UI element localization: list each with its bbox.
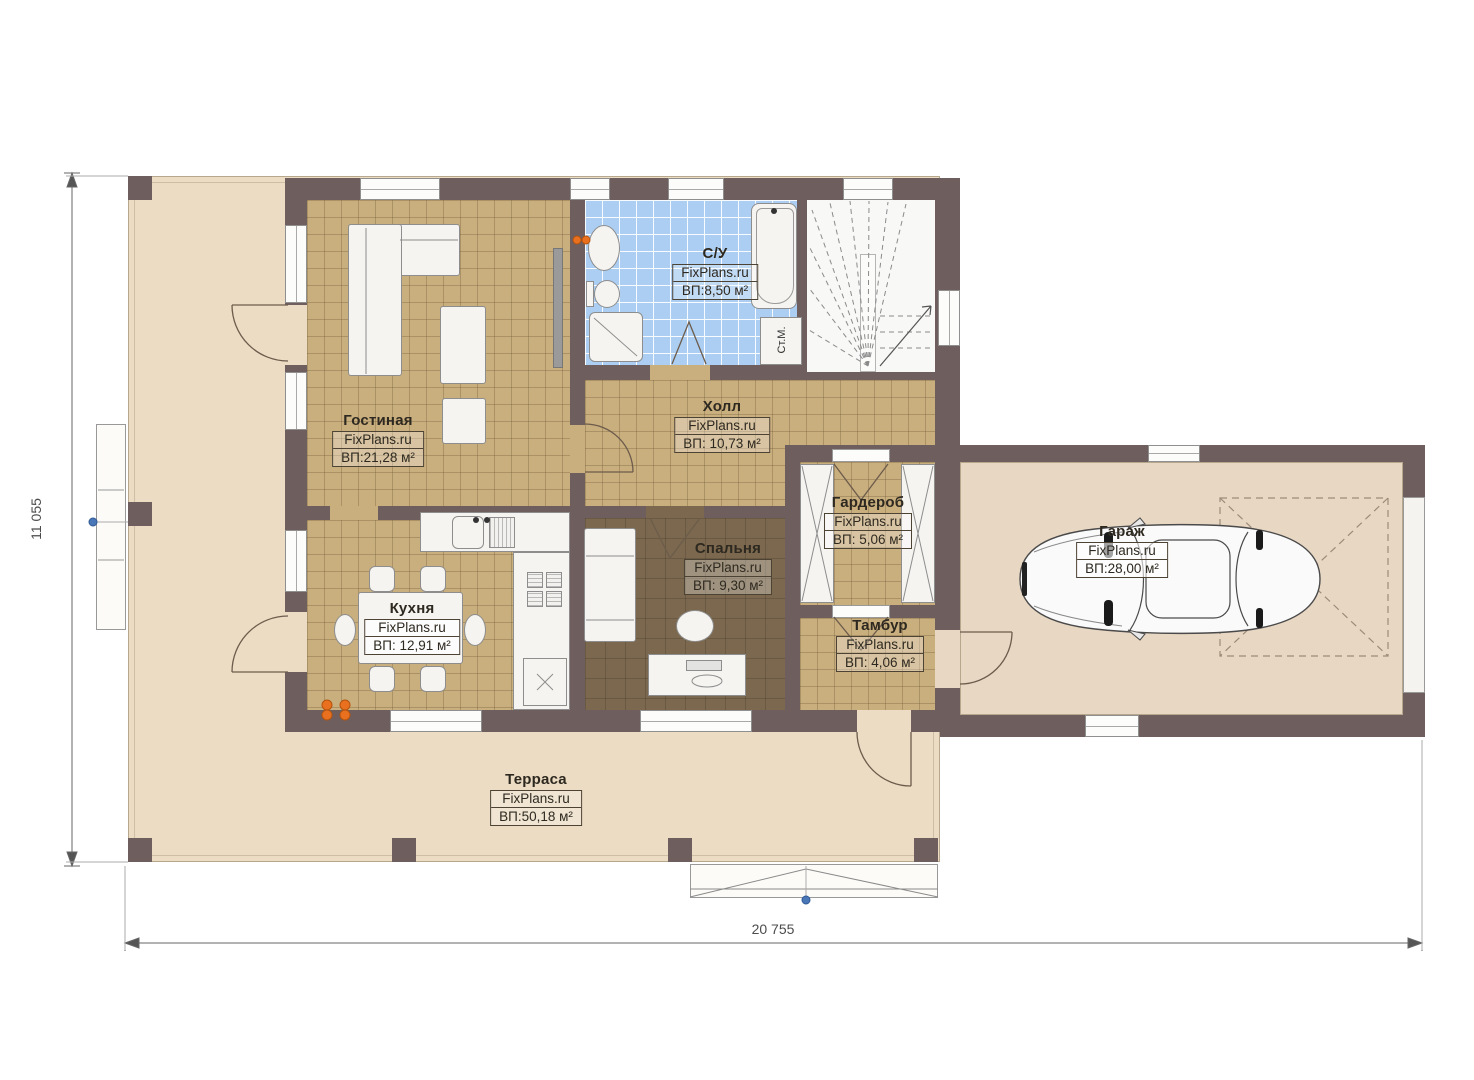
dimension-width-label: 20 755 [752,921,795,937]
window [285,530,307,592]
stove-burner [527,572,543,588]
brand-text: FixPlans.ru [837,637,923,654]
brand-text: FixPlans.ru [491,791,581,808]
room-label-hall: Холл FixPlans.ru ВП: 10,73 м² [674,398,770,453]
kitchen-sink [452,516,484,549]
chair [420,566,446,592]
garage-floor [960,462,1403,715]
room-label-bathroom: С/У FixPlans.ru ВП:8,50 м² [672,245,758,300]
room-label-living: Гостиная FixPlans.ru ВП:21,28 м² [332,412,424,467]
room-name: Холл [674,398,770,415]
brand-text: FixPlans.ru [365,620,459,637]
floor-plan-canvas: Гостиная FixPlans.ru ВП:21,28 м² С/У Fix… [0,0,1474,1080]
window [843,178,893,200]
toilet-bowl [594,280,620,308]
door-gap-living-kitchen [330,506,378,520]
bathtub-inner [756,208,794,304]
room-area: ВП: 9,30 м² [685,577,771,594]
door-gap-living-terrace [285,305,307,365]
door-gap-bedroom [646,506,704,518]
room-area: ВП:8,50 м² [673,282,757,299]
chair [369,566,395,592]
room-name: Кухня [364,600,460,617]
room-label-wardrobe: Гардероб FixPlans.ru ВП: 5,06 м² [824,494,912,549]
room-area: ВП:28,00 м² [1077,560,1167,577]
room-name: С/У [672,245,758,262]
garage-door-opening [1403,497,1425,693]
door-gap-living-hall [570,425,585,473]
stove-burner [546,572,562,588]
chair [369,666,395,692]
window [1148,445,1200,462]
brand-text: FixPlans.ru [673,265,757,282]
terrace-post [128,176,152,200]
desk-chair [676,610,714,642]
coffee-table [440,306,486,384]
room-area: ВП: 4,06 м² [837,654,923,671]
terrace-post [668,838,692,862]
window [360,178,440,200]
door-gap-bathroom [650,365,710,380]
bed [584,528,636,642]
terrace-post [128,502,152,526]
room-area: ВП:50,18 м² [491,808,581,825]
washing-machine-label: Ст.М. [776,320,788,360]
terrace-post [392,838,416,862]
dimension-bottom [125,935,1422,951]
room-area: ВП: 10,73 м² [675,435,769,452]
stove-burner [527,591,543,607]
terrace-post [128,838,152,862]
stair-newel [860,254,876,372]
brand-text: FixPlans.ru [825,514,911,531]
window [938,290,960,346]
door-gap-vestibule-terrace [857,710,911,732]
brand-text: FixPlans.ru [1077,543,1167,560]
brand-text: FixPlans.ru [685,560,771,577]
room-name: Гостиная [332,412,424,429]
placemat [334,614,356,646]
room-area: ВП: 12,91 м² [365,637,459,654]
room-label-garage: Гараж FixPlans.ru ВП:28,00 м² [1076,523,1168,578]
tv-panel [553,248,563,368]
window [570,178,610,200]
window [390,710,482,732]
stair-hall-wall [807,372,880,380]
ottoman [442,398,486,444]
window [285,372,307,430]
window [640,710,752,732]
door-gap-wardrobe [832,449,890,462]
window [1085,715,1139,737]
toilet-tank [586,281,594,307]
shower [589,312,643,362]
window [285,225,307,303]
sofa [348,224,402,376]
fridge [523,658,567,706]
brand-text: FixPlans.ru [675,418,769,435]
room-label-kitchen: Кухня FixPlans.ru ВП: 12,91 м² [364,600,460,655]
room-area: ВП: 5,06 м² [825,531,911,548]
monitor [686,660,722,671]
room-label-bedroom: Спальня FixPlans.ru ВП: 9,30 м² [684,540,772,595]
side-porch [96,424,126,630]
dish-rack [489,517,515,548]
window [668,178,724,200]
brand-text: FixPlans.ru [333,432,423,449]
chair [420,666,446,692]
room-name: Терраса [490,771,582,788]
dimension-height-label: 11 055 [28,498,44,540]
door-gap-vestibule-garage [935,630,960,688]
dimension-left [64,173,80,866]
entrance-steps [690,864,938,898]
room-area: ВП:21,28 м² [333,449,423,466]
stove-burner [546,591,562,607]
room-name: Спальня [684,540,772,557]
bathroom-sink [588,225,620,271]
room-name: Гараж [1076,523,1168,540]
room-label-terrace: Терраса FixPlans.ru ВП:50,18 м² [490,771,582,826]
terrace-post [914,838,938,862]
door-gap-kitchen-terrace [285,612,307,672]
placemat [464,614,486,646]
room-name: Гардероб [824,494,912,511]
room-label-vestibule: Тамбур FixPlans.ru ВП: 4,06 м² [836,617,924,672]
room-name: Тамбур [836,617,924,634]
